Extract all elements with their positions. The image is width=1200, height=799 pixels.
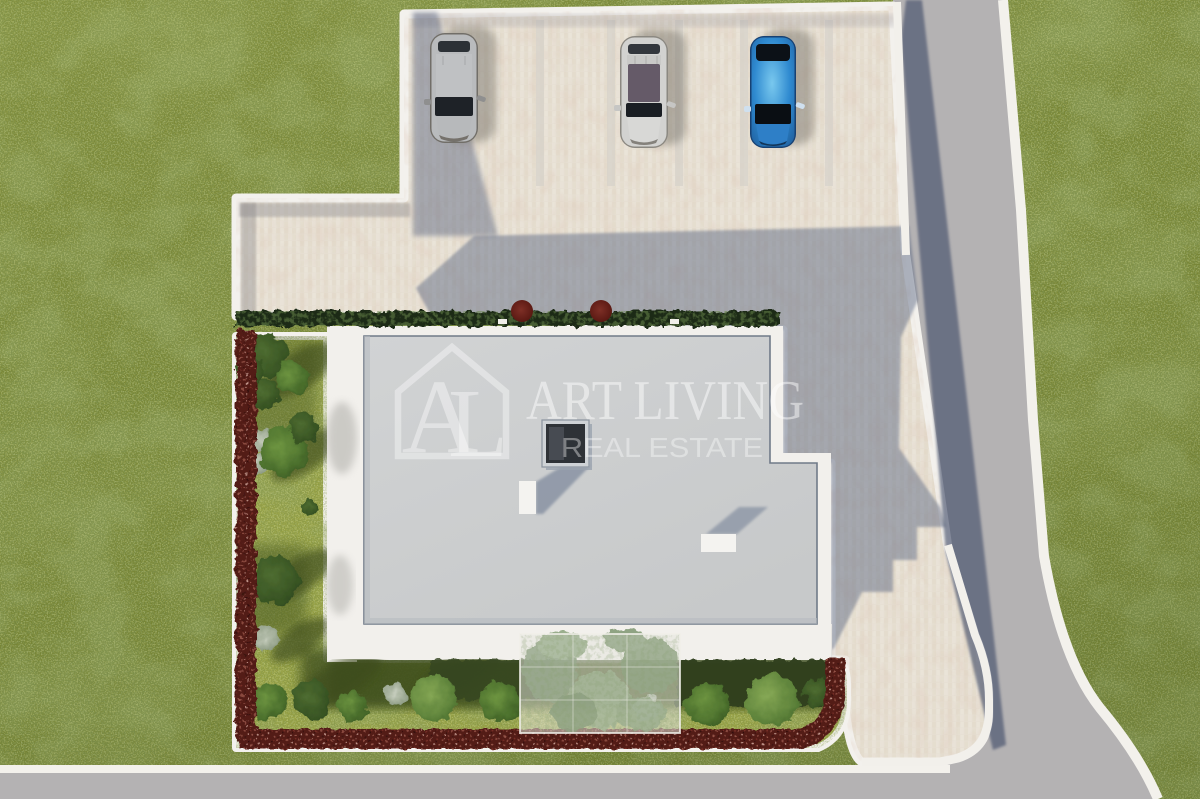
- svg-text:ART LIVING: ART LIVING: [526, 370, 804, 432]
- svg-text:REAL ESTATE: REAL ESTATE: [561, 432, 763, 463]
- svg-text:L: L: [448, 370, 508, 478]
